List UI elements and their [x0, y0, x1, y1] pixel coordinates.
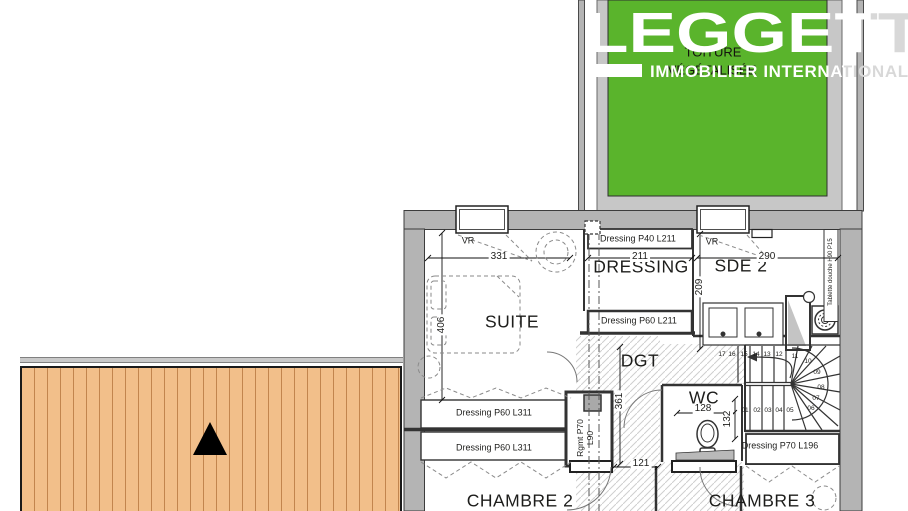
room-label-chambre2: CHAMBRE 2 — [467, 492, 574, 510]
dim-suite-width: 331 — [489, 252, 510, 262]
stair-step-08: 08 — [817, 385, 824, 392]
stair-step-13: 13 — [763, 352, 770, 359]
terrace-railing — [20, 357, 403, 363]
dim-sde2-height: 209 — [695, 277, 705, 298]
stair-step-17: 17 — [718, 352, 725, 359]
dim-dgt-height: 361 — [615, 391, 625, 412]
stair-step-16: 16 — [728, 352, 735, 359]
wc-shelf — [676, 450, 734, 460]
vr-label-sde2: VR — [706, 238, 719, 247]
stair-step-01: 01 — [741, 408, 748, 415]
stair-step-05: 05 — [786, 408, 793, 415]
stair-step-15: 15 — [740, 352, 747, 359]
leggett-logo: LEGGETT — [585, 5, 908, 62]
dim-wc-height: 132 — [723, 409, 733, 430]
room-label-dgt: DGT — [621, 352, 659, 370]
dim-dressing-width: 211 — [630, 252, 650, 262]
north-arrow-icon — [193, 422, 227, 455]
dim-sde2-width: 290 — [757, 252, 778, 262]
leggett-logo-tagline: IMMOBILIER INTERNATIONAL — [650, 63, 908, 80]
stair-step-09: 09 — [813, 370, 820, 377]
leggett-logo-l-foot — [591, 64, 642, 77]
closet-label-p60-l211: Dressing P60 L211 — [601, 317, 677, 326]
stair-step-02: 02 — [753, 408, 760, 415]
shower-icon — [786, 292, 815, 351]
closet-label-p60-l311-b: Dressing P60 L311 — [456, 444, 532, 453]
stair-step-14: 14 — [752, 352, 759, 359]
vr-label-suite: VR — [462, 237, 475, 246]
floorplan-page: TOITURE VÉGÉTALISÉE SUITE DRESSING SDE 2… — [0, 0, 908, 511]
closet-label-p40-l211: Dressing P40 L211 — [600, 235, 676, 244]
room-label-chambre3: CHAMBRE 3 — [709, 492, 816, 510]
stair-step-04: 04 — [775, 408, 782, 415]
dim-hall-width: 121 — [631, 459, 652, 469]
stair-step-07: 07 — [812, 396, 819, 403]
dim-suite-height: 406 — [437, 315, 447, 336]
stair-step-11: 11 — [792, 354, 799, 361]
room-label-suite: SUITE — [485, 313, 539, 331]
closet-label-p70-l196: Dressing P70 L196 — [742, 442, 819, 451]
closet-label-p60-l311-a: Dressing P60 L311 — [456, 409, 532, 418]
stair-step-12: 12 — [775, 352, 782, 359]
dim-wc-width: 128 — [693, 404, 714, 414]
stair-step-06: 06 — [807, 406, 814, 413]
stair-step-03: 03 — [764, 408, 771, 415]
stair-step-10: 10 — [804, 359, 811, 366]
vanity-icon — [703, 303, 783, 345]
closet-label-rgmt: Rgmt P70 L90 — [575, 415, 595, 461]
shelf-label-tablette: Tablette douche H90 P15 — [828, 238, 834, 305]
